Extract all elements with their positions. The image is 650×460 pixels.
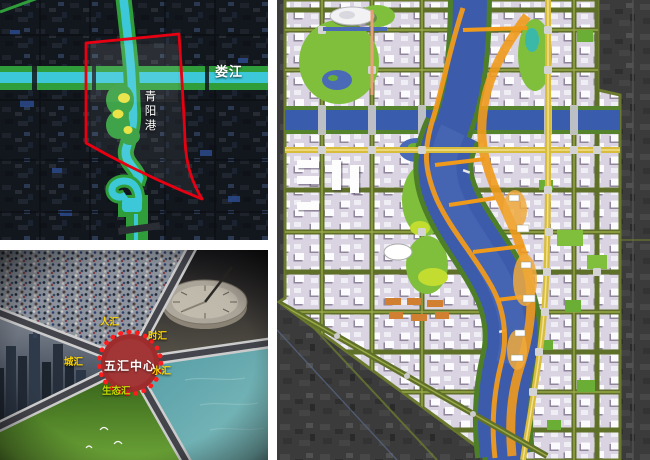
qingyanggang-river-label: 青阳港 bbox=[144, 90, 156, 134]
spoke-label-people: 人汇 bbox=[100, 318, 119, 328]
planning-collage: 娄江 青阳港 bbox=[0, 0, 650, 460]
site-map-graphic bbox=[0, 0, 268, 240]
loujiang-river-label: 娄江 bbox=[215, 66, 243, 79]
five-hui-center-label: 五汇中心 bbox=[95, 357, 165, 374]
eye-building bbox=[384, 244, 412, 260]
park-pond bbox=[322, 70, 352, 90]
master-plan-graphic bbox=[277, 0, 650, 460]
master-plan-panel bbox=[277, 0, 650, 460]
five-hui-concept-panel: 人汇 时汇 城汇 水汇 生态汇 五汇中心 bbox=[0, 250, 268, 460]
spoke-label-city: 城汇 bbox=[64, 358, 83, 368]
spoke-label-ecology: 生态汇 bbox=[102, 387, 131, 397]
concept-diagram-graphic bbox=[0, 250, 268, 460]
spoke-label-time: 时汇 bbox=[148, 332, 167, 342]
site-context-map-panel: 娄江 青阳港 bbox=[0, 0, 268, 240]
